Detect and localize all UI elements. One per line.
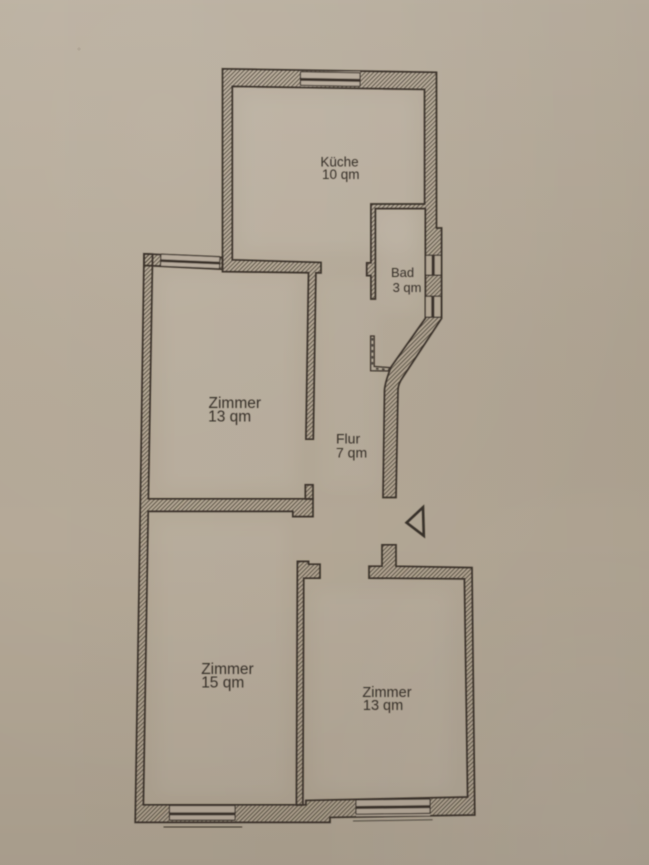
svg-text:13 qm: 13 qm xyxy=(208,408,251,425)
svg-text:Bad: Bad xyxy=(391,265,414,280)
svg-text:3 qm: 3 qm xyxy=(393,280,422,295)
svg-text:15 qm: 15 qm xyxy=(201,674,244,691)
svg-text:10 qm: 10 qm xyxy=(322,167,360,182)
svg-text:7 qm: 7 qm xyxy=(336,445,367,461)
svg-text:13 qm: 13 qm xyxy=(363,698,403,714)
